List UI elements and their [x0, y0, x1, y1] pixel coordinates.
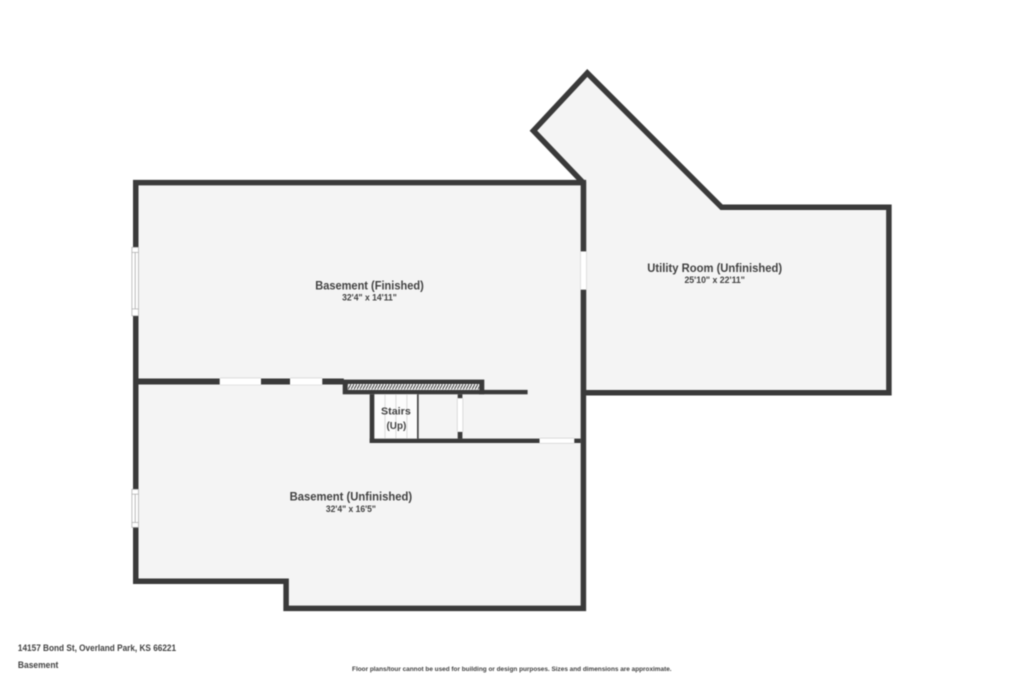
svg-text:25'10" x 22'11": 25'10" x 22'11": [684, 275, 745, 285]
svg-text:(Up): (Up): [387, 421, 407, 432]
svg-text:Basement (Unfinished): Basement (Unfinished): [290, 490, 413, 503]
svg-text:Utility Room (Unfinished): Utility Room (Unfinished): [647, 262, 782, 275]
svg-text:Basement (Finished): Basement (Finished): [315, 280, 424, 293]
svg-text:Floor plans/tour cannot be use: Floor plans/tour cannot be used for buil…: [352, 666, 672, 673]
svg-text:32'4" x 16'5": 32'4" x 16'5": [326, 504, 376, 514]
svg-text:Stairs: Stairs: [381, 407, 411, 418]
svg-text:Basement: Basement: [18, 660, 58, 670]
svg-text:14157 Bond St, Overland Park,: 14157 Bond St, Overland Park, KS 66221: [18, 643, 176, 653]
svg-text:32'4" x 14'11": 32'4" x 14'11": [342, 293, 397, 303]
